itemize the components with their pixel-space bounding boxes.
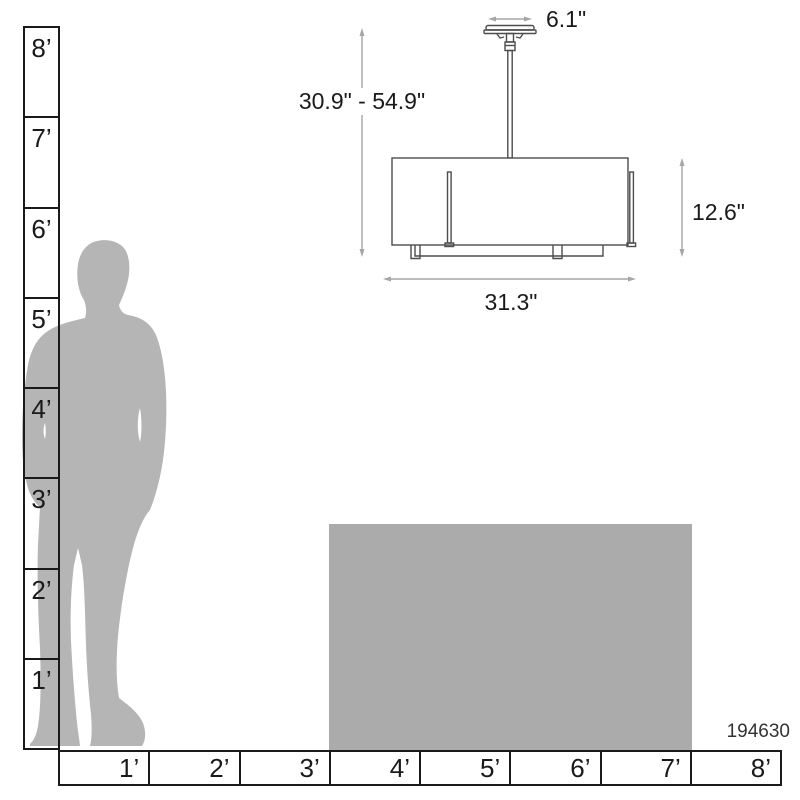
accent-rod-right xyxy=(630,172,634,243)
dimension-diagram-canvas: 6.1" 30.9" - 54.9" 12.6" 31.3" 194630 8’… xyxy=(0,0,800,800)
canopy-width-label: 6.1" xyxy=(546,6,586,33)
arrowhead xyxy=(360,249,365,257)
pendant-light-diagram xyxy=(0,0,800,800)
height-range-label: 30.9" - 54.9" xyxy=(295,88,429,115)
stem-nipple xyxy=(507,34,514,43)
arrowhead xyxy=(628,277,636,282)
canopy-clip-right xyxy=(516,34,523,38)
arrowhead xyxy=(524,17,532,22)
stem-rod xyxy=(508,51,512,159)
canopy-clip-left xyxy=(497,34,504,38)
arrowhead xyxy=(680,158,685,166)
product-code: 194630 xyxy=(727,721,790,743)
bottom-diffuser xyxy=(415,245,603,256)
shade-height-label: 12.6" xyxy=(692,199,745,226)
arrowhead xyxy=(383,277,391,282)
arrowhead xyxy=(680,249,685,257)
shade-width-label: 31.3" xyxy=(485,289,538,316)
outer-shade xyxy=(392,158,628,245)
arrowhead xyxy=(488,17,496,22)
fixture-drawing xyxy=(392,26,636,259)
stem-coupler xyxy=(505,42,515,51)
arrowhead xyxy=(360,28,365,36)
